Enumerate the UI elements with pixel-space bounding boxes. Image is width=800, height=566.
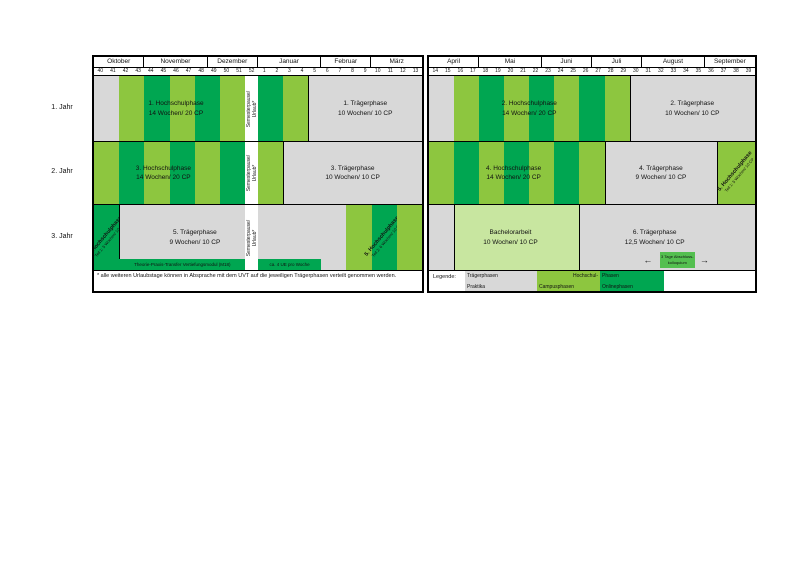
phase-cell — [195, 76, 220, 141]
phase-cell — [529, 142, 554, 204]
week-number: 48 — [195, 68, 208, 75]
phase-cell — [429, 142, 454, 204]
month-label: April — [429, 57, 479, 67]
phase-cell — [283, 142, 422, 204]
phase-cell — [144, 76, 169, 141]
week-number: 38 — [730, 68, 743, 75]
hochschulphase-part-cell: 5. HochschulphaseTeil 1: 5 Wochen/ 10 CP — [717, 142, 755, 204]
abschluss-box: 3 Tage Abschluss-kolloquium — [660, 252, 695, 268]
phase-cell — [479, 76, 504, 141]
week-number: 3 — [283, 68, 296, 75]
week-number: 27 — [592, 68, 605, 75]
phase-cell — [258, 76, 283, 141]
week-number: 42 — [119, 68, 132, 75]
week-number: 6 — [321, 68, 334, 75]
row-year3-left: 5. HochschulphaseTeil 1: 5 Wochen/ 10 CP… — [94, 205, 422, 271]
week-number: 41 — [107, 68, 120, 75]
study-plan-sheet: 1. Jahr 2. Jahr 3. Jahr OktoberNovemberD… — [0, 0, 800, 566]
phase-cell — [579, 76, 604, 141]
legend-row: Legende: Trägerphasen Praktika Hochschul… — [429, 271, 755, 291]
footnote-row: * alle weiteren Urlaubstage können in Ab… — [94, 271, 422, 291]
winter-halfyear-table: OktoberNovemberDezemberJanuarFebruarMärz… — [92, 55, 424, 293]
phase-cell — [529, 76, 554, 141]
phase-cell — [119, 142, 144, 204]
phase-cell — [119, 76, 144, 141]
phase-cell — [605, 142, 718, 204]
week-number: 37 — [717, 68, 730, 75]
phase-cell — [258, 142, 283, 204]
week-number: 51 — [233, 68, 246, 75]
phase-cell — [554, 76, 579, 141]
legend-onlinephasen-bottom: Onlinephasen — [602, 284, 662, 290]
phase-cell — [605, 76, 630, 141]
legend-onlinephasen-box: Phasen Onlinephasen — [600, 271, 664, 291]
bottom-strip-label: ca. 4 UE pro Woche — [258, 259, 321, 270]
week-number: 26 — [579, 68, 592, 75]
week-number: 24 — [554, 68, 567, 75]
week-number: 4 — [296, 68, 309, 75]
phase-cell — [346, 205, 371, 270]
hochschulphase-part-cell: 5. HochschulphaseTeil 1: 5 Wochen/ 10 CP — [94, 205, 119, 270]
week-number: 43 — [132, 68, 145, 75]
legend-title: Legende: — [433, 274, 456, 280]
phase-cell — [579, 142, 604, 204]
month-label: Juni — [542, 57, 592, 67]
phase-cell — [144, 142, 169, 204]
week-number: 32 — [655, 68, 668, 75]
phase-cell — [170, 142, 195, 204]
legend-traegerphasen-top: Trägerphasen — [467, 273, 535, 279]
row-year1-left: Semesterpause/Urlaub*1. Hochschulphase14… — [94, 76, 422, 142]
week-number: 7 — [334, 68, 347, 75]
week-header-right: 1415161718192021222324252627282930313233… — [429, 68, 755, 76]
phase-cell — [454, 205, 579, 270]
semester-break-cell: Semesterpause/Urlaub* — [245, 142, 258, 204]
phase-cell — [454, 142, 479, 204]
month-label: Januar — [258, 57, 321, 67]
week-number: 30 — [630, 68, 643, 75]
phase-cell — [504, 76, 529, 141]
phase-cell — [429, 205, 454, 270]
week-number: 17 — [467, 68, 480, 75]
week-number: 33 — [667, 68, 680, 75]
week-number: 9 — [359, 68, 372, 75]
phase-cell — [554, 142, 579, 204]
row-year2-right: 5. HochschulphaseTeil 1: 5 Wochen/ 10 CP… — [429, 142, 755, 205]
phase-cell — [220, 142, 245, 204]
week-number: 44 — [144, 68, 157, 75]
month-label: August — [642, 57, 705, 67]
semester-break-cell: Semesterpause/Urlaub* — [245, 205, 258, 270]
week-number: 35 — [692, 68, 705, 75]
month-label: März — [371, 57, 421, 67]
week-number: 15 — [442, 68, 455, 75]
week-number: 52 — [245, 68, 258, 75]
phase-cell — [283, 76, 308, 141]
semester-break-label: Semesterpause/Urlaub* — [245, 90, 258, 126]
month-label: November — [144, 57, 207, 67]
diagonal-phase-label: 5. HochschulphaseTeil 1: 5 Wochen/ 10 CP — [716, 150, 755, 195]
phase-cell — [170, 76, 195, 141]
week-number: 29 — [617, 68, 630, 75]
hochschulphase-part-cell: 5. HochschulphaseTeil 2: 6 Wochen/ 10 CP — [372, 205, 397, 270]
week-number: 11 — [384, 68, 397, 75]
semester-break-label: Semesterpause/Urlaub* — [245, 219, 258, 255]
phase-cell — [195, 142, 220, 204]
week-number: 21 — [517, 68, 530, 75]
week-number: 13 — [409, 68, 422, 75]
phase-cell — [94, 76, 119, 141]
phase-cell — [308, 76, 422, 141]
week-number: 31 — [642, 68, 655, 75]
week-number: 50 — [220, 68, 233, 75]
month-header-right: AprilMaiJuniJuliAugustSeptember — [429, 57, 755, 68]
week-number: 18 — [479, 68, 492, 75]
week-number: 49 — [207, 68, 220, 75]
month-label: Dezember — [208, 57, 258, 67]
left-arrow-icon: ← — [643, 256, 652, 265]
row-year1-right: 2. Hochschulphase14 Wochen/ 20 CP2. Träg… — [429, 76, 755, 142]
week-number: 10 — [371, 68, 384, 75]
phase-cell — [479, 142, 504, 204]
bottom-strip-label: Theorie-Praxis-Transfer Vertiefungsmodul… — [119, 259, 245, 270]
week-number: 5 — [308, 68, 321, 75]
legend-phasen-top: Phasen — [602, 273, 662, 279]
phase-cell — [397, 205, 422, 270]
phase-cell — [429, 76, 454, 141]
phase-cell — [630, 76, 755, 141]
week-number: 20 — [504, 68, 517, 75]
phase-cell — [454, 76, 479, 141]
week-number: 34 — [680, 68, 693, 75]
week-number: 12 — [397, 68, 410, 75]
week-number: 14 — [429, 68, 442, 75]
legend-campusphasen-box: Hochschul- Campusphasen — [537, 271, 600, 291]
week-number: 22 — [529, 68, 542, 75]
week-number: 28 — [604, 68, 617, 75]
week-number: 46 — [170, 68, 183, 75]
legend-traegerphasen-box: Trägerphasen Praktika — [465, 271, 537, 291]
week-number: 8 — [346, 68, 359, 75]
month-label: Mai — [479, 57, 542, 67]
year-3-label: 3. Jahr — [38, 203, 86, 269]
phase-cell — [220, 76, 245, 141]
week-number: 16 — [454, 68, 467, 75]
legend-hochschul-top: Hochschul- — [539, 273, 598, 279]
row-year2-left: Semesterpause/Urlaub*3. Hochschulphase14… — [94, 142, 422, 205]
week-number: 45 — [157, 68, 170, 75]
week-number: 23 — [542, 68, 555, 75]
month-label: September — [705, 57, 755, 67]
week-number: 47 — [182, 68, 195, 75]
year-2-label: 2. Jahr — [38, 140, 86, 203]
week-number: 2 — [271, 68, 284, 75]
right-arrow-icon: → — [700, 256, 709, 265]
month-header-left: OktoberNovemberDezemberJanuarFebruarMärz — [94, 57, 422, 68]
semester-break-cell: Semesterpause/Urlaub* — [245, 76, 258, 141]
row-year3-right: Bachelorarbeit10 Wochen/ 10 CP6. Trägerp… — [429, 205, 755, 271]
week-number: 1 — [258, 68, 271, 75]
legend-campusphasen-bottom: Campusphasen — [539, 284, 598, 290]
month-label: Februar — [321, 57, 371, 67]
week-number: 40 — [94, 68, 107, 75]
phase-cell — [94, 142, 119, 204]
footnote-text: * alle weiteren Urlaubstage können in Ab… — [94, 271, 422, 281]
semester-break-label: Semesterpause/Urlaub* — [245, 155, 258, 191]
week-number: 39 — [742, 68, 755, 75]
week-header-left: 4041424344454647484950515212345678910111… — [94, 68, 422, 76]
summer-halfyear-table: AprilMaiJuniJuliAugustSeptember 14151617… — [427, 55, 757, 293]
week-number: 19 — [492, 68, 505, 75]
week-number: 36 — [705, 68, 718, 75]
week-number: 25 — [567, 68, 580, 75]
month-label: Juli — [592, 57, 642, 67]
year-1-label: 1. Jahr — [38, 74, 86, 140]
month-label: Oktober — [94, 57, 144, 67]
legend-traegerphasen-bottom: Praktika — [467, 284, 535, 290]
phase-cell — [504, 142, 529, 204]
